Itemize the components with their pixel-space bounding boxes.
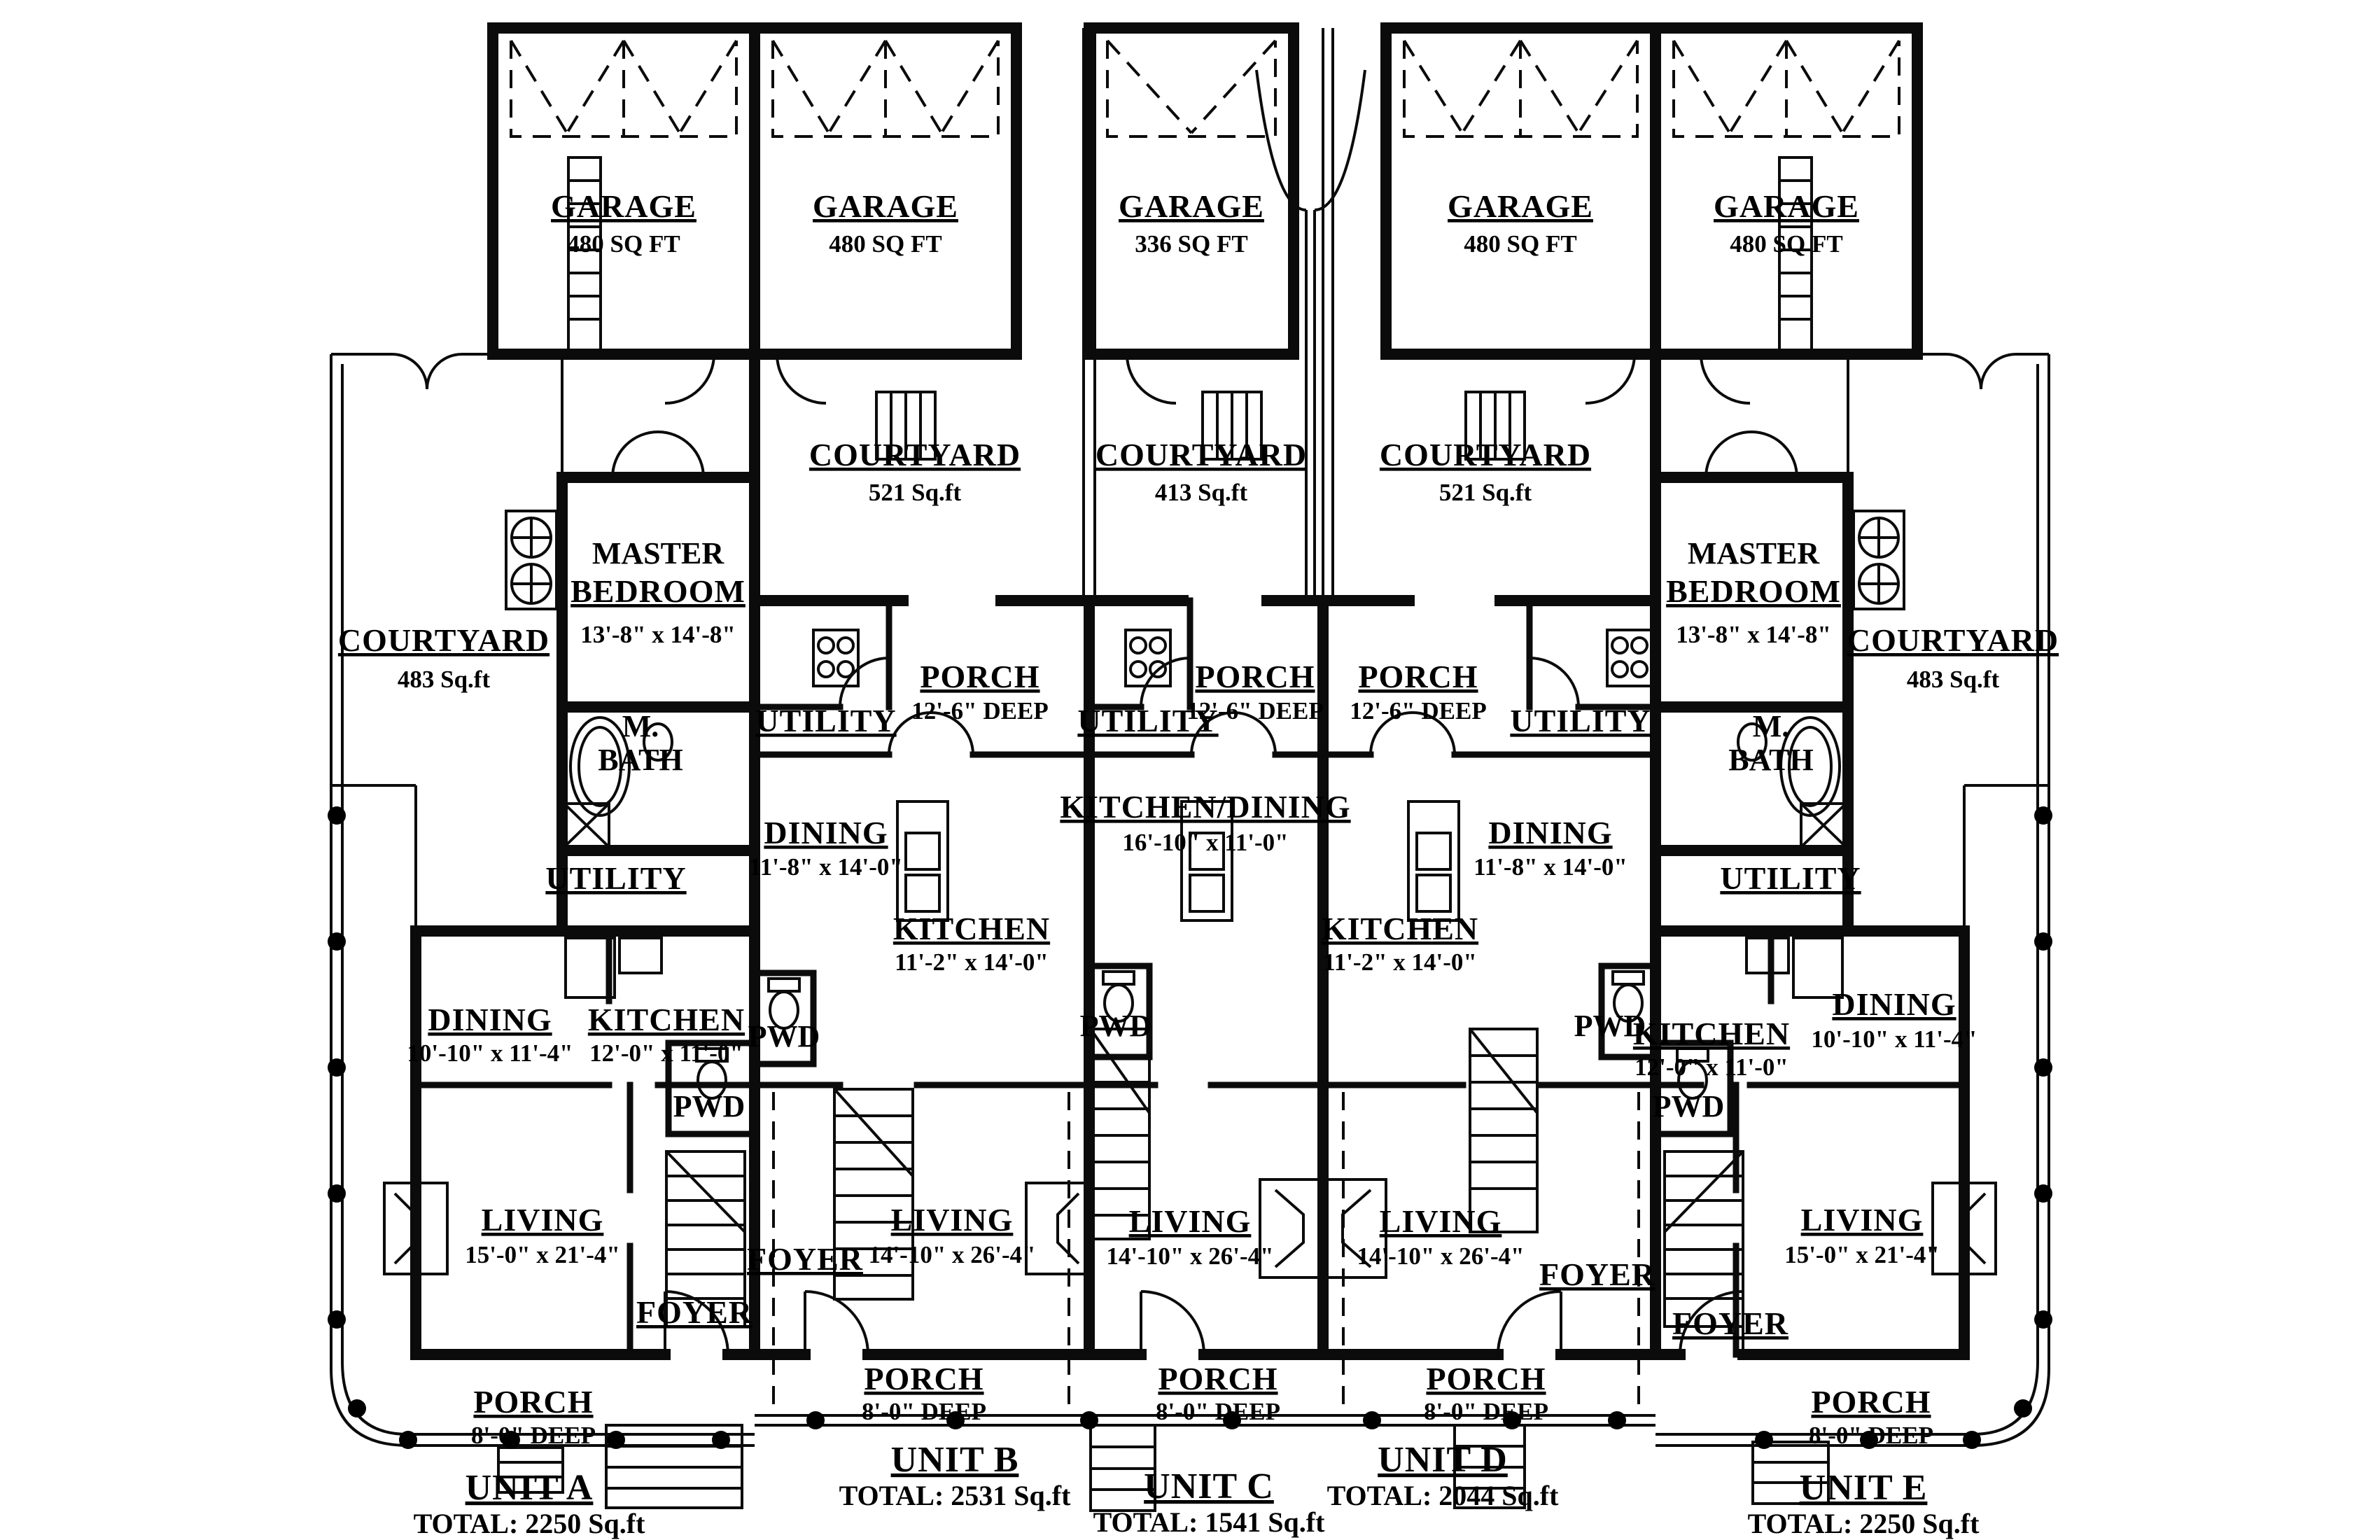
kitchen-dining-c-dims: 16'-10" x 11'-0" [1122,829,1288,856]
garage-d-label: GARAGE [1448,188,1593,224]
unit-d-label: UNIT D [1378,1440,1508,1480]
unit-c-total: TOTAL: 1541 Sq.ft [1093,1506,1325,1538]
floor-plan: GARAGE 480 SQ FT GARAGE 480 SQ FT GARAGE… [0,0,2380,1540]
porch-front-c-label: PORCH [1158,1361,1277,1396]
courtyard-b-label: COURTYARD [809,437,1021,472]
dining-d-dims: 11'-8" x 14'-0" [1473,853,1627,881]
porch-mid-b-depth: 12'-6" DEEP [911,697,1048,724]
living-d-label: LIVING [1380,1203,1502,1239]
porch-front-e-label: PORCH [1811,1384,1931,1420]
unit-a-total: TOTAL: 2250 Sq.ft [414,1508,645,1539]
pwd-c-label: PWD [1080,1009,1152,1043]
pwd-b-label: PWD [748,1019,820,1053]
living-b-label: LIVING [891,1202,1014,1238]
utility-a-label: UTILITY [545,860,686,896]
porch-mid-b-label: PORCH [920,659,1039,694]
garage-d-area: 480 SQ FT [1464,230,1576,258]
courtyard-d-area: 521 Sq.ft [1439,479,1532,506]
courtyard-a-label: COURTYARD [338,622,549,658]
utility-e-label: UTILITY [1720,860,1861,896]
courtyard-c-label: COURTYARD [1095,437,1307,472]
porch-front-a-depth: 8'-0" DEEP [471,1422,596,1449]
kitchen-a-dims: 12'-0" x 11'-0" [589,1039,743,1067]
courtyard-a-area: 483 Sq.ft [398,666,491,693]
garage-e-label: GARAGE [1714,188,1859,224]
porch-front-d-depth: 8'-0" DEEP [1424,1398,1548,1425]
dining-a-dims: 10'-10" x 11'-4" [407,1039,573,1067]
kitchen-b-dims: 11'-2" x 14'-0" [895,948,1049,976]
dining-d-label: DINING [1488,815,1612,850]
porch-mid-d-depth: 12'-6" DEEP [1350,697,1486,724]
living-c-label: LIVING [1129,1203,1252,1239]
floor-plan-drawing: GARAGE 480 SQ FT GARAGE 480 SQ FT GARAGE… [0,0,2380,1540]
dining-e-dims: 10'-10" x 11'-4" [1811,1025,1977,1053]
master-bedroom-a-label-1: MASTER [592,536,724,570]
living-d-dims: 14'-10" x 26'-4" [1357,1242,1524,1270]
garage-a-area: 480 SQ FT [567,230,680,258]
kitchen-d-label: KITCHEN [1322,911,1478,946]
toilet-icon [696,972,1708,1098]
unit-d-total: TOTAL: 2044 Sq.ft [1327,1480,1559,1511]
garage-a-label: GARAGE [551,188,696,224]
master-bedroom-a-label-2: BEDROOM [570,573,745,609]
kitchen-a-label: KITCHEN [588,1002,745,1037]
porch-mid-d-label: PORCH [1358,659,1478,694]
porch-front-e-depth: 8'-0" DEEP [1809,1422,1933,1449]
unit-e-total: TOTAL: 2250 Sq.ft [1748,1508,1980,1539]
room-labels: GARAGE 480 SQ FT GARAGE 480 SQ FT GARAGE… [338,188,2059,1539]
foyer-e-label: FOYER [1672,1305,1788,1341]
unit-b-label: UNIT B [891,1440,1019,1480]
utility-b-label: UTILITY [755,703,896,738]
utility-d-label: UTILITY [1510,703,1651,738]
courtyard-e-label: COURTYARD [1847,622,2059,658]
porch-front-c-depth: 8'-0" DEEP [1156,1398,1280,1425]
garage-b-label: GARAGE [813,188,958,224]
courtyard-d-label: COURTYARD [1380,437,1591,472]
pwd-a-label: PWD [673,1089,745,1123]
kitchen-dining-c-label: KITCHEN/DINING [1060,789,1350,825]
unit-b-total: TOTAL: 2531 Sq.ft [839,1480,1071,1511]
courtyard-b-area: 521 Sq.ft [869,479,962,506]
living-a-label: LIVING [482,1202,604,1238]
garage-c-area: 336 SQ FT [1135,230,1247,258]
master-bedroom-e-dims: 13'-8" x 14'-8" [1676,621,1831,648]
garage-c-label: GARAGE [1119,188,1264,224]
unit-e-label: UNIT E [1800,1468,1928,1508]
master-bath-e-label-1: M. [1753,709,1790,743]
master-bedroom-e-label-1: MASTER [1688,536,1820,570]
dining-e-label: DINING [1832,986,1956,1022]
living-a-dims: 15'-0" x 21'-4" [465,1241,620,1268]
pwd-e-label: PWD [1653,1089,1725,1123]
porch-mid-c-label: PORCH [1195,659,1315,694]
master-bedroom-e-label-2: BEDROOM [1666,573,1841,609]
kitchen-d-dims: 11'-2" x 14'-0" [1323,948,1477,976]
master-bath-a-label-1: M. [622,709,659,743]
kitchen-e-label: KITCHEN [1633,1016,1790,1051]
porch-front-b-depth: 8'-0" DEEP [862,1398,986,1425]
porch-mid-c-depth: 12'-6" DEEP [1186,697,1323,724]
porch-front-b-label: PORCH [864,1361,983,1396]
living-b-dims: 14'-10" x 26'-4" [868,1241,1035,1268]
porch-front-a-label: PORCH [473,1384,593,1420]
living-e-label: LIVING [1801,1202,1924,1238]
kitchen-e-dims: 12'-0" x 11'-0" [1634,1053,1788,1081]
foyer-d-label: FOYER [1539,1256,1655,1292]
master-bath-a-label-2: BATH [598,743,682,777]
unit-c-label: UNIT C [1144,1466,1274,1506]
dining-a-label: DINING [428,1002,552,1037]
living-e-dims: 15'-0" x 21'-4" [1784,1241,1940,1268]
dining-b-dims: 11'-8" x 14'-0" [749,853,903,881]
courtyard-e-area: 483 Sq.ft [1907,666,2000,693]
foyer-b-label: FOYER [747,1241,863,1277]
unit-a-label: UNIT A [465,1468,594,1508]
porch-front-d-label: PORCH [1426,1361,1546,1396]
master-bath-e-label-2: BATH [1728,743,1813,777]
courtyard-c-area: 413 Sq.ft [1155,479,1248,506]
foyer-a-label: FOYER [636,1294,752,1330]
garage-e-area: 480 SQ FT [1730,230,1842,258]
living-c-dims: 14'-10" x 26'-4" [1106,1242,1273,1270]
garage-b-area: 480 SQ FT [829,230,941,258]
master-bedroom-a-dims: 13'-8" x 14'-8" [580,621,736,648]
kitchen-b-label: KITCHEN [893,911,1050,946]
pwd-d-label: PWD [1574,1009,1646,1043]
dining-b-label: DINING [764,815,888,850]
